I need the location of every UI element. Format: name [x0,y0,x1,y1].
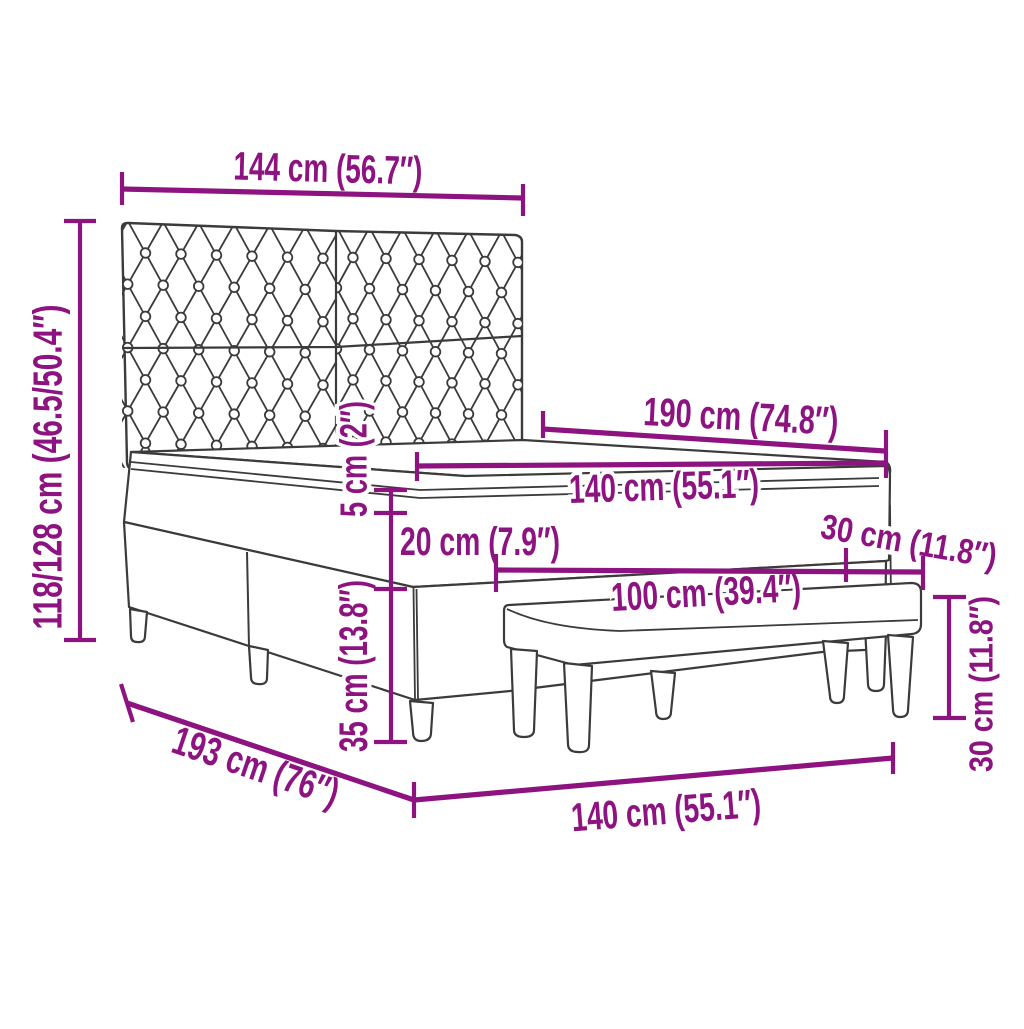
svg-text:118/128 cm (46.5/50.4″): 118/128 cm (46.5/50.4″) [24,305,70,630]
svg-text:5 cm (2″): 5 cm (2″) [333,401,375,517]
svg-text:30 cm (11.8″): 30 cm (11.8″) [963,596,1000,772]
svg-text:144 cm (56.7″): 144 cm (56.7″) [233,145,423,194]
svg-text:20 cm (7.9″): 20 cm (7.9″) [400,520,560,564]
svg-text:140 cm (55.1″): 140 cm (55.1″) [568,462,759,512]
svg-text:35 cm (13.8″): 35 cm (13.8″) [332,580,376,752]
